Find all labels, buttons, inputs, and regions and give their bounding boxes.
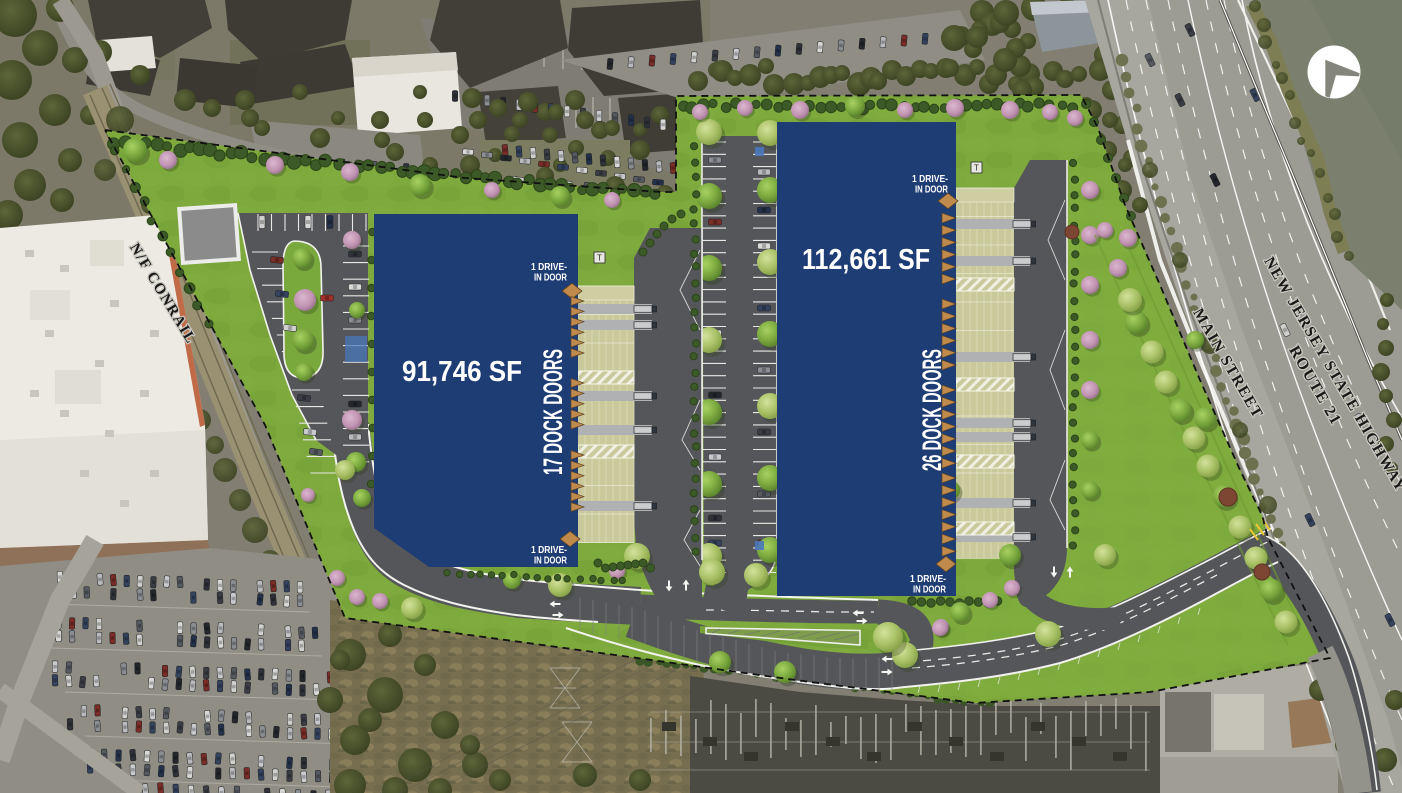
svg-text:1 DRIVE-: 1 DRIVE-	[912, 174, 948, 185]
svg-text:T: T	[597, 254, 602, 263]
svg-text:1 DRIVE-: 1 DRIVE-	[531, 262, 567, 273]
svg-text:1 DRIVE-: 1 DRIVE-	[531, 545, 567, 556]
svg-text:T: T	[974, 164, 979, 173]
svg-text:IN DOOR: IN DOOR	[913, 585, 947, 596]
svg-text:17 DOCK DOORS: 17 DOCK DOORS	[538, 349, 568, 475]
svg-text:91,746 SF: 91,746 SF	[402, 356, 522, 388]
svg-text:IN DOOR: IN DOOR	[534, 556, 568, 567]
svg-text:1 DRIVE-: 1 DRIVE-	[910, 574, 946, 585]
svg-text:IN DOOR: IN DOOR	[915, 185, 949, 196]
svg-text:112,661 SF: 112,661 SF	[802, 244, 930, 276]
svg-text:IN DOOR: IN DOOR	[534, 273, 568, 284]
